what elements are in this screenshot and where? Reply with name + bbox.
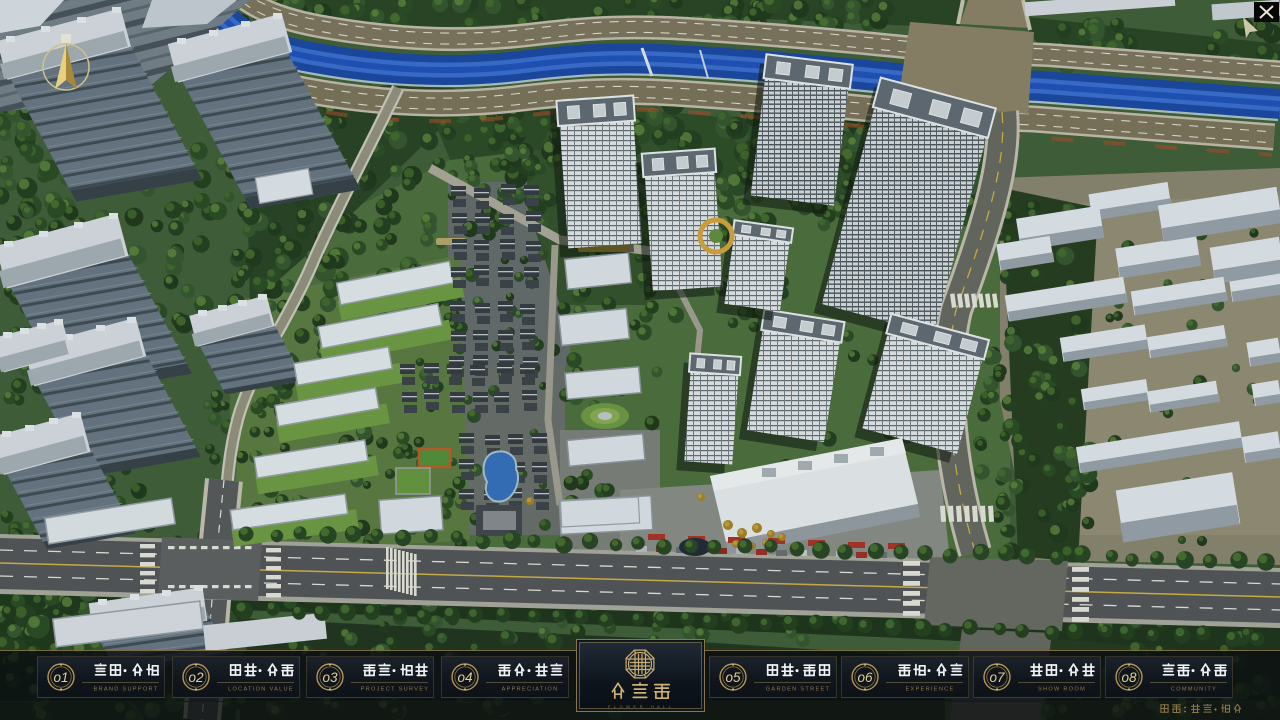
svg-text:LOCATION VALUE: LOCATION VALUE — [228, 687, 294, 693]
svg-text:o8: o8 — [1121, 670, 1137, 685]
svg-text:o2: o2 — [188, 670, 204, 685]
svg-text:F L O W E R · H A L L: F L O W E R · H A L L — [608, 704, 672, 709]
svg-text:o3: o3 — [322, 670, 338, 685]
svg-text:EXPERIENCE: EXPERIENCE — [905, 687, 954, 693]
svg-text:o5: o5 — [725, 670, 741, 685]
svg-text:SHOW ROOM: SHOW ROOM — [1038, 687, 1086, 693]
svg-text:PROJECT SURVEY: PROJECT SURVEY — [361, 687, 430, 693]
svg-text:o6: o6 — [857, 670, 873, 685]
svg-text:BRAND SUPPORT: BRAND SUPPORT — [94, 687, 159, 693]
svg-text:GARDEN STREET: GARDEN STREET — [766, 687, 830, 693]
svg-text:APPRECIATION: APPRECIATION — [502, 687, 559, 693]
svg-text:o4: o4 — [457, 670, 472, 685]
svg-text:o7: o7 — [989, 670, 1005, 685]
svg-text:COMMUNITY: COMMUNITY — [1171, 687, 1217, 693]
svg-text:o1: o1 — [53, 670, 68, 685]
